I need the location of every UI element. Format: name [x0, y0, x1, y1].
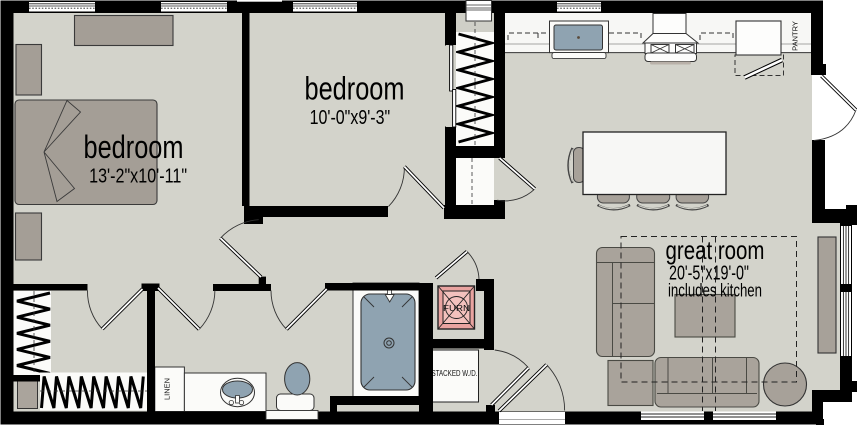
svg-text:bedroom: bedroom — [84, 129, 184, 165]
svg-text:bedroom: bedroom — [305, 71, 405, 107]
svg-text:FURN: FURN — [443, 303, 470, 313]
svg-text:10'-0"x9'-3": 10'-0"x9'-3" — [310, 107, 391, 129]
svg-text:great room: great room — [666, 235, 765, 265]
svg-text:13'-2"x10'-11": 13'-2"x10'-11" — [89, 165, 187, 187]
svg-text:LINEN: LINEN — [163, 378, 172, 400]
svg-text:PANTRY: PANTRY — [791, 21, 800, 51]
svg-text:includes kitchen: includes kitchen — [668, 281, 762, 301]
svg-text:STACKED W./D.: STACKED W./D. — [432, 369, 478, 378]
